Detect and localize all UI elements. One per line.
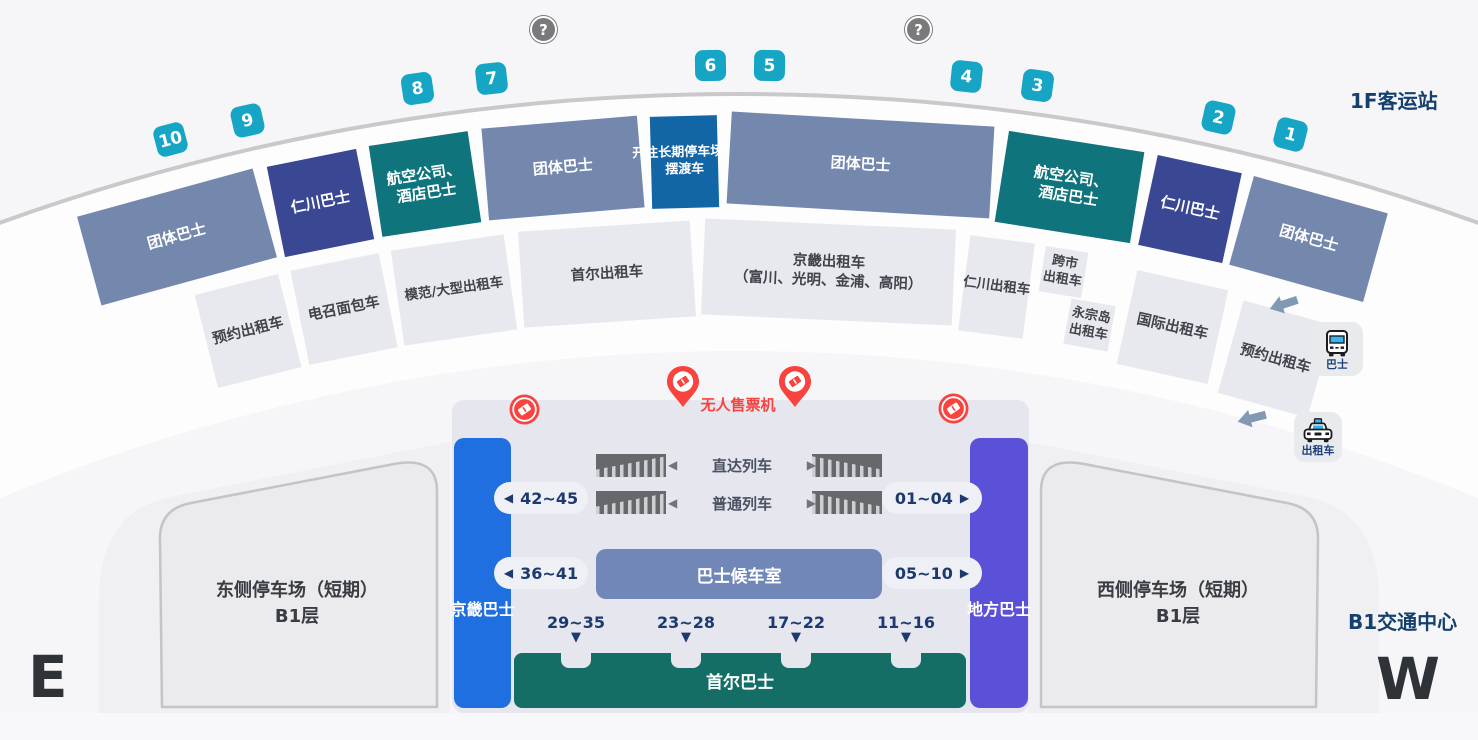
arrow-right-icon: ▶ <box>807 458 816 472</box>
help-icon[interactable]: ? <box>529 15 558 44</box>
bus-zone: 仁川巴士 <box>266 149 374 257</box>
taxi-legend: 出租车 <box>1294 412 1342 462</box>
east-parking-line1: 东侧停车场（短期） <box>177 578 417 604</box>
zone-label: 首尔出租车 <box>570 263 644 287</box>
ticket-machine-icon <box>938 393 969 428</box>
waiting-room-label: 巴士候车室 <box>697 562 782 587</box>
floor-title-b1: B1交通中心 <box>1348 606 1457 635</box>
zone-label: 仁川巴士 <box>289 187 352 218</box>
express-train-label: 直达列车 <box>712 455 772 476</box>
gate-tab-01-04: 01~04 ▶ <box>882 482 982 514</box>
escalator-icon <box>596 454 666 477</box>
bus-waiting-room: 巴士候车室 <box>596 549 882 599</box>
help-label: ? <box>530 16 557 43</box>
bus-bay-notch <box>891 653 921 668</box>
zone-label: 模范/大型出租车 <box>404 275 505 306</box>
taxi-zone: 国际出租车 <box>1116 270 1227 384</box>
stop-number-badge: 9 <box>229 102 266 139</box>
taxi-zone: 仁川出租车 <box>958 235 1035 339</box>
zone-label: 预约出租车 <box>210 313 285 349</box>
zone-label: 团体巴士 <box>146 219 209 254</box>
stop-number-badge: 7 <box>475 62 509 96</box>
gate-range-label: 05~10 <box>895 564 953 583</box>
gate-tab-05-10: 05~10 ▶ <box>882 557 982 589</box>
taxi-zone: 跨市出租车 <box>1038 246 1088 298</box>
bus-bay-notch <box>781 653 811 668</box>
floor-title-1f: 1F客运站 <box>1350 85 1438 114</box>
gate-range-label: 36~41 <box>520 564 578 583</box>
triangle-down-icon: ▼ <box>571 632 581 644</box>
local-bus-label: 地方巴士 <box>967 596 1031 620</box>
bus-zone: 团体巴士 <box>726 111 994 218</box>
east-direction-label: E <box>28 648 68 706</box>
arrow-left-icon: ◀ <box>504 491 513 505</box>
arrow-right-icon: ▶ <box>807 496 816 510</box>
bus-legend-label: 巴士 <box>1326 359 1348 370</box>
gate-tab-36-41: ◀ 36~41 <box>494 557 588 589</box>
west-direction-label: W <box>1376 650 1440 708</box>
east-parking-line2: B1层 <box>177 604 417 630</box>
bus-legend: 巴士 <box>1311 322 1363 376</box>
stop-number-badge: 4 <box>949 60 983 94</box>
zone-label: 预约出租车 <box>1238 340 1313 378</box>
bus-bay-notch <box>561 653 591 668</box>
bus-zone: 团体巴士 <box>481 116 644 221</box>
triangle-down-icon: ▼ <box>791 632 801 644</box>
zone-label: （富川、光明、金浦、高阳） <box>733 268 922 295</box>
arrow-left-icon: ◀ <box>668 496 677 510</box>
bus-icon <box>1322 328 1352 358</box>
escalator-icon <box>812 454 882 477</box>
platform-17-22: 17~22 ▼ <box>756 613 836 644</box>
help-icon[interactable]: ? <box>904 15 933 44</box>
arrow-left-icon: ◀ <box>504 566 513 580</box>
triangle-down-icon: ▼ <box>901 632 911 644</box>
zone-label: 国际出租车 <box>1134 310 1209 344</box>
stop-number-badge: 3 <box>1020 68 1055 103</box>
taxi-legend-label: 出租车 <box>1302 445 1335 456</box>
zone-label: 团体巴士 <box>830 153 891 176</box>
stop-number-badge: 5 <box>754 49 785 80</box>
west-parking-label: 西侧停车场（短期） B1层 <box>1058 578 1298 630</box>
gyeonggi-bus-label: 京畿巴士 <box>450 596 514 620</box>
taxi-zone: 京畿出租车（富川、光明、金浦、高阳） <box>701 218 956 325</box>
taxi-zone: 模范/大型出租车 <box>391 235 518 346</box>
zone-label: 团体巴士 <box>1277 222 1340 257</box>
airport-transport-map: 团体巴士仁川巴士航空公司、酒店巴士团体巴士开往长期停车场的摆渡车团体巴士航空公司… <box>0 0 1478 740</box>
zone-label: 电召面包车 <box>306 293 381 326</box>
bus-zone: 开往长期停车场的摆渡车 <box>650 115 719 209</box>
arrow-right-icon: ▶ <box>960 566 969 580</box>
ticket-machine-label: 无人售票机 <box>688 394 788 415</box>
zone-label: 团体巴士 <box>532 156 593 180</box>
bus-bay-notch <box>671 653 701 668</box>
seoul-bus-label: 首尔巴士 <box>706 668 774 693</box>
escalator-icon <box>596 491 666 514</box>
regular-train-label: 普通列车 <box>712 493 772 514</box>
east-parking-label: 东侧停车场（短期） B1层 <box>177 578 417 630</box>
zone-label: 仁川出租车 <box>962 273 1031 299</box>
triangle-down-icon: ▼ <box>681 632 691 644</box>
taxi-zone: 首尔出租车 <box>518 221 696 328</box>
escalator-icon <box>812 491 882 514</box>
west-parking-line1: 西侧停车场（短期） <box>1058 578 1298 604</box>
taxi-icon <box>1302 418 1334 444</box>
platform-11-16: 11~16 ▼ <box>866 613 946 644</box>
help-label: ? <box>905 16 932 43</box>
bus-zone: 航空公司、酒店巴士 <box>368 131 481 237</box>
zone-label: 开往长期停车场的 <box>632 143 736 163</box>
regular-train-row: ◀ 普通列车 ▶ <box>668 490 816 516</box>
west-parking-line2: B1层 <box>1058 604 1298 630</box>
taxi-zone: 永宗岛出租车 <box>1063 299 1116 352</box>
gate-range-label: 01~04 <box>895 489 953 508</box>
zone-label: 摆渡车 <box>665 161 704 179</box>
stop-number-badge: 8 <box>399 71 434 106</box>
bottom-strip <box>0 713 1478 740</box>
arrow-right-icon: ▶ <box>960 491 969 505</box>
platform-29-35: 29~35 ▼ <box>536 613 616 644</box>
platform-23-28: 23~28 ▼ <box>646 613 726 644</box>
zone-label: 仁川巴士 <box>1158 193 1221 225</box>
gate-range-label: 42~45 <box>520 489 578 508</box>
taxi-zone: 电召面包车 <box>290 253 397 365</box>
stop-number-badge: 6 <box>694 49 725 80</box>
arrow-left-icon: ◀ <box>668 458 677 472</box>
express-train-row: ◀ 直达列车 ▶ <box>668 452 816 478</box>
ticket-machine-icon <box>509 394 540 429</box>
gate-tab-42-45: ◀ 42~45 <box>494 482 588 514</box>
